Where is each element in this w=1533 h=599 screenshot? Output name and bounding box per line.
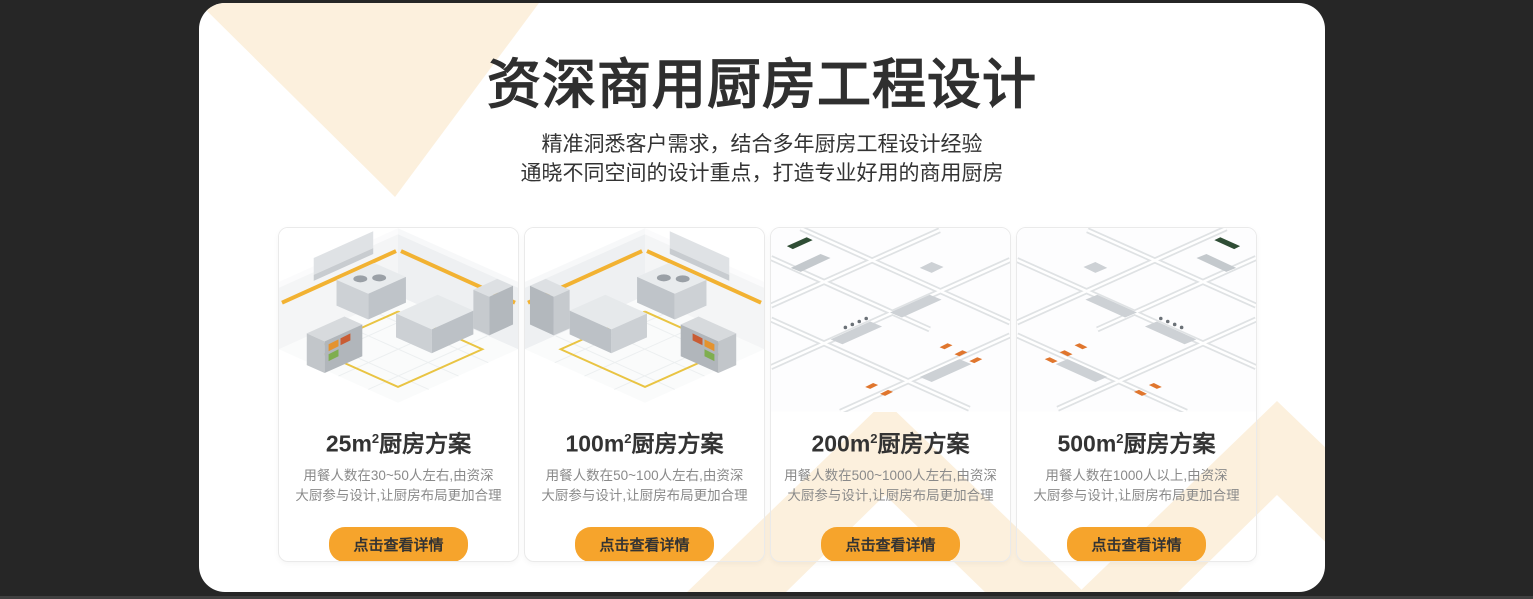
content-panel: 资深商用厨房工程设计 精准洞悉客户需求，结合多年厨房工程设计经验 通晓不同空间的… — [199, 3, 1325, 592]
card-title-suffix: 厨房方案 — [1124, 431, 1216, 457]
card-title: 200m2厨房方案 — [771, 424, 1010, 459]
plan-card-100m2[interactable]: 100m2厨房方案 用餐人数在50~100人左右,由资深 大厨参与设计,让厨房布… — [524, 227, 765, 562]
subtitle-line-1: 精准洞悉客户需求，结合多年厨房工程设计经验 — [199, 130, 1325, 159]
section-header: 资深商用厨房工程设计 精准洞悉客户需求，结合多年厨房工程设计经验 通晓不同空间的… — [199, 3, 1325, 188]
plan-card-list: 25m2厨房方案 用餐人数在30~50人左右,由资深 大厨参与设计,让厨房布局更… — [278, 227, 1257, 562]
kitchen-render-image — [1017, 228, 1256, 412]
card-title: 25m2厨房方案 — [279, 424, 518, 459]
card-title-suffix: 厨房方案 — [379, 431, 471, 457]
kitchen-render-image — [771, 228, 1010, 412]
card-area-exponent: 2 — [1116, 431, 1123, 446]
card-title: 100m2厨房方案 — [525, 424, 764, 459]
kitchen-render-image — [279, 228, 518, 412]
card-title-suffix: 厨房方案 — [878, 431, 970, 457]
card-title: 500m2厨房方案 — [1017, 424, 1256, 459]
card-area-exponent: 2 — [624, 431, 631, 446]
card-description: 用餐人数在1000人以上,由资深 大厨参与设计,让厨房布局更加合理 — [1023, 466, 1250, 506]
view-details-button[interactable]: 点击查看详情 — [821, 527, 959, 562]
card-area-value: 200m — [811, 431, 870, 457]
card-area-value: 500m — [1057, 431, 1116, 457]
card-title-suffix: 厨房方案 — [632, 431, 724, 457]
card-area-exponent: 2 — [870, 431, 877, 446]
subtitle-line-2: 通晓不同空间的设计重点，打造专业好用的商用厨房 — [199, 159, 1325, 188]
view-details-button[interactable]: 点击查看详情 — [1067, 527, 1205, 562]
kitchen-render-image — [525, 228, 764, 412]
view-details-button[interactable]: 点击查看详情 — [329, 527, 467, 562]
view-details-button[interactable]: 点击查看详情 — [575, 527, 713, 562]
plan-card-500m2[interactable]: 500m2厨房方案 用餐人数在1000人以上,由资深 大厨参与设计,让厨房布局更… — [1016, 227, 1257, 562]
card-description: 用餐人数在500~1000人左右,由资深 大厨参与设计,让厨房布局更加合理 — [777, 466, 1004, 506]
card-description: 用餐人数在50~100人左右,由资深 大厨参与设计,让厨房布局更加合理 — [531, 466, 758, 506]
page-subtitle: 精准洞悉客户需求，结合多年厨房工程设计经验 通晓不同空间的设计重点，打造专业好用… — [199, 130, 1325, 188]
plan-card-200m2[interactable]: 200m2厨房方案 用餐人数在500~1000人左右,由资深 大厨参与设计,让厨… — [770, 227, 1011, 562]
plan-card-25m2[interactable]: 25m2厨房方案 用餐人数在30~50人左右,由资深 大厨参与设计,让厨房布局更… — [278, 227, 519, 562]
card-area-value: 100m — [565, 431, 624, 457]
card-description: 用餐人数在30~50人左右,由资深 大厨参与设计,让厨房布局更加合理 — [285, 466, 512, 506]
card-area-value: 25m — [326, 431, 372, 457]
page-title: 资深商用厨房工程设计 — [199, 53, 1325, 117]
